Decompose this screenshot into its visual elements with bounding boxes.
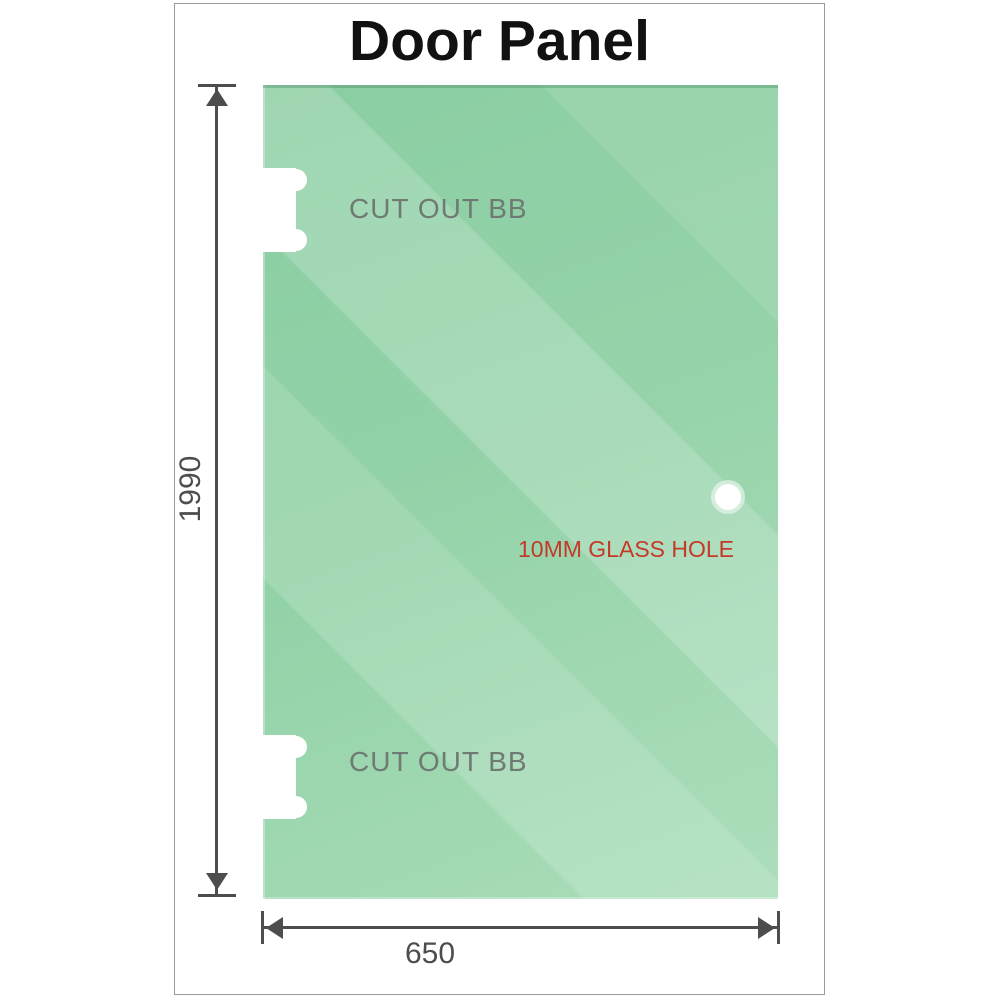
width-dimension-label: 650 bbox=[385, 939, 475, 969]
glass-hole-label: 10MM GLASS HOLE bbox=[518, 535, 734, 563]
height-dimension-cap-top bbox=[198, 84, 236, 87]
cutout-bottom-lobe-lower bbox=[285, 796, 307, 818]
arrow-left-icon bbox=[266, 917, 283, 939]
arrow-up-icon bbox=[206, 89, 228, 106]
arrow-down-icon bbox=[206, 873, 228, 890]
height-dimension-line bbox=[215, 87, 218, 895]
width-dimension-cap-left bbox=[261, 911, 264, 944]
glass-panel: CUT OUT BB CUT OUT BB 10MM GLASS HOLE bbox=[263, 85, 778, 899]
page-title: Door Panel bbox=[174, 10, 825, 73]
cutout-top-label: CUT OUT BB bbox=[349, 192, 528, 225]
glass-hole bbox=[715, 484, 741, 510]
cutout-bottom bbox=[263, 735, 309, 819]
height-dimension-cap-bottom bbox=[198, 894, 236, 897]
cutout-top-lobe-lower bbox=[285, 229, 307, 251]
door-panel-diagram: Door Panel CUT OUT BB CUT OUT BB 10MM GL… bbox=[0, 0, 1000, 1000]
cutout-top bbox=[263, 168, 309, 252]
arrow-right-icon bbox=[758, 917, 775, 939]
cutout-top-lobe-upper bbox=[285, 169, 307, 191]
width-dimension-cap-right bbox=[777, 911, 780, 944]
height-dimension-label: 1990 bbox=[176, 444, 206, 534]
cutout-bottom-lobe-upper bbox=[285, 736, 307, 758]
width-dimension-line bbox=[263, 926, 778, 929]
cutout-bottom-label: CUT OUT BB bbox=[349, 745, 528, 778]
